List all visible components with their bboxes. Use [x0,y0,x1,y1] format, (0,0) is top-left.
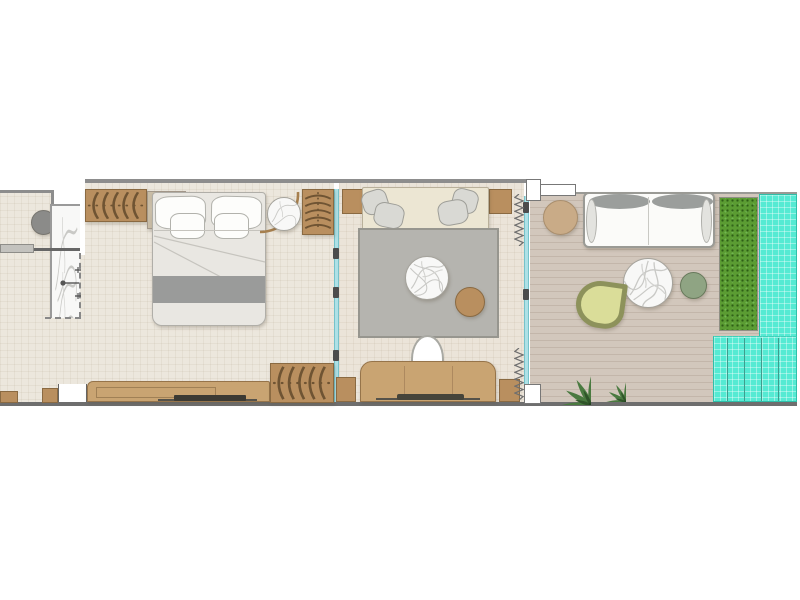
pool-main [713,336,797,402]
outline-mask [0,176,85,191]
slatted-wardrobe-bottom [270,363,334,403]
bolster-cushion [589,194,650,209]
duvet-runner [153,276,265,303]
potted-plant-small [585,361,626,402]
tv [174,395,246,401]
round-marble-coffee-table [405,256,449,300]
wall-mid [34,248,80,251]
wall-pier [526,179,541,201]
arm-bolster [701,199,712,243]
hedge-planter [719,197,758,331]
wall-top-main [85,179,541,183]
arm-bolster [586,199,597,243]
shower-fixture [52,262,84,304]
wall-stub-cabinet [0,391,18,403]
round-ottoman [543,200,578,235]
pool-step-line [778,338,779,401]
pool-strip [759,194,797,337]
floor-plan-canvas [0,0,800,600]
entry-door-opening [58,384,87,402]
marble-veins [624,259,672,307]
slatted-wardrobe-right [302,189,334,235]
round-marble-table [623,258,673,308]
marble-veins [268,198,300,230]
corner-cabinet [342,189,363,214]
slatted-wardrobe-left [85,189,147,222]
wall-top-bathroom [0,190,53,193]
vanity-counter [0,244,34,253]
sage-pouf [680,272,707,299]
pool-step-line [761,338,762,401]
corner-cabinet [336,377,356,402]
marble-veins [406,257,448,299]
wall-stub-cabinet [42,388,58,403]
glass-door-handle [333,350,339,361]
corner-cabinet [489,189,512,214]
desk-tray [397,394,464,401]
glass-door-handle [333,287,339,298]
curtain [514,194,524,246]
pool-step-line [727,338,728,401]
wardrobe-slats [271,364,333,402]
round-wood-side-table [455,287,485,317]
curtain [514,348,524,400]
outline-mask [52,191,85,205]
terrace-wall-pier [540,184,576,196]
glass-door-handle [333,248,339,259]
sofa-seam [648,197,649,245]
wardrobe-slats [303,190,333,234]
glass-door-handle [523,289,529,300]
potted-plant-large [531,345,591,405]
wardrobe-slats [86,190,146,221]
shower-glass-dashed [45,317,81,319]
round-marble-side-table [267,197,301,231]
pool-step-line [744,338,745,401]
wall-bottom-main [0,402,797,406]
